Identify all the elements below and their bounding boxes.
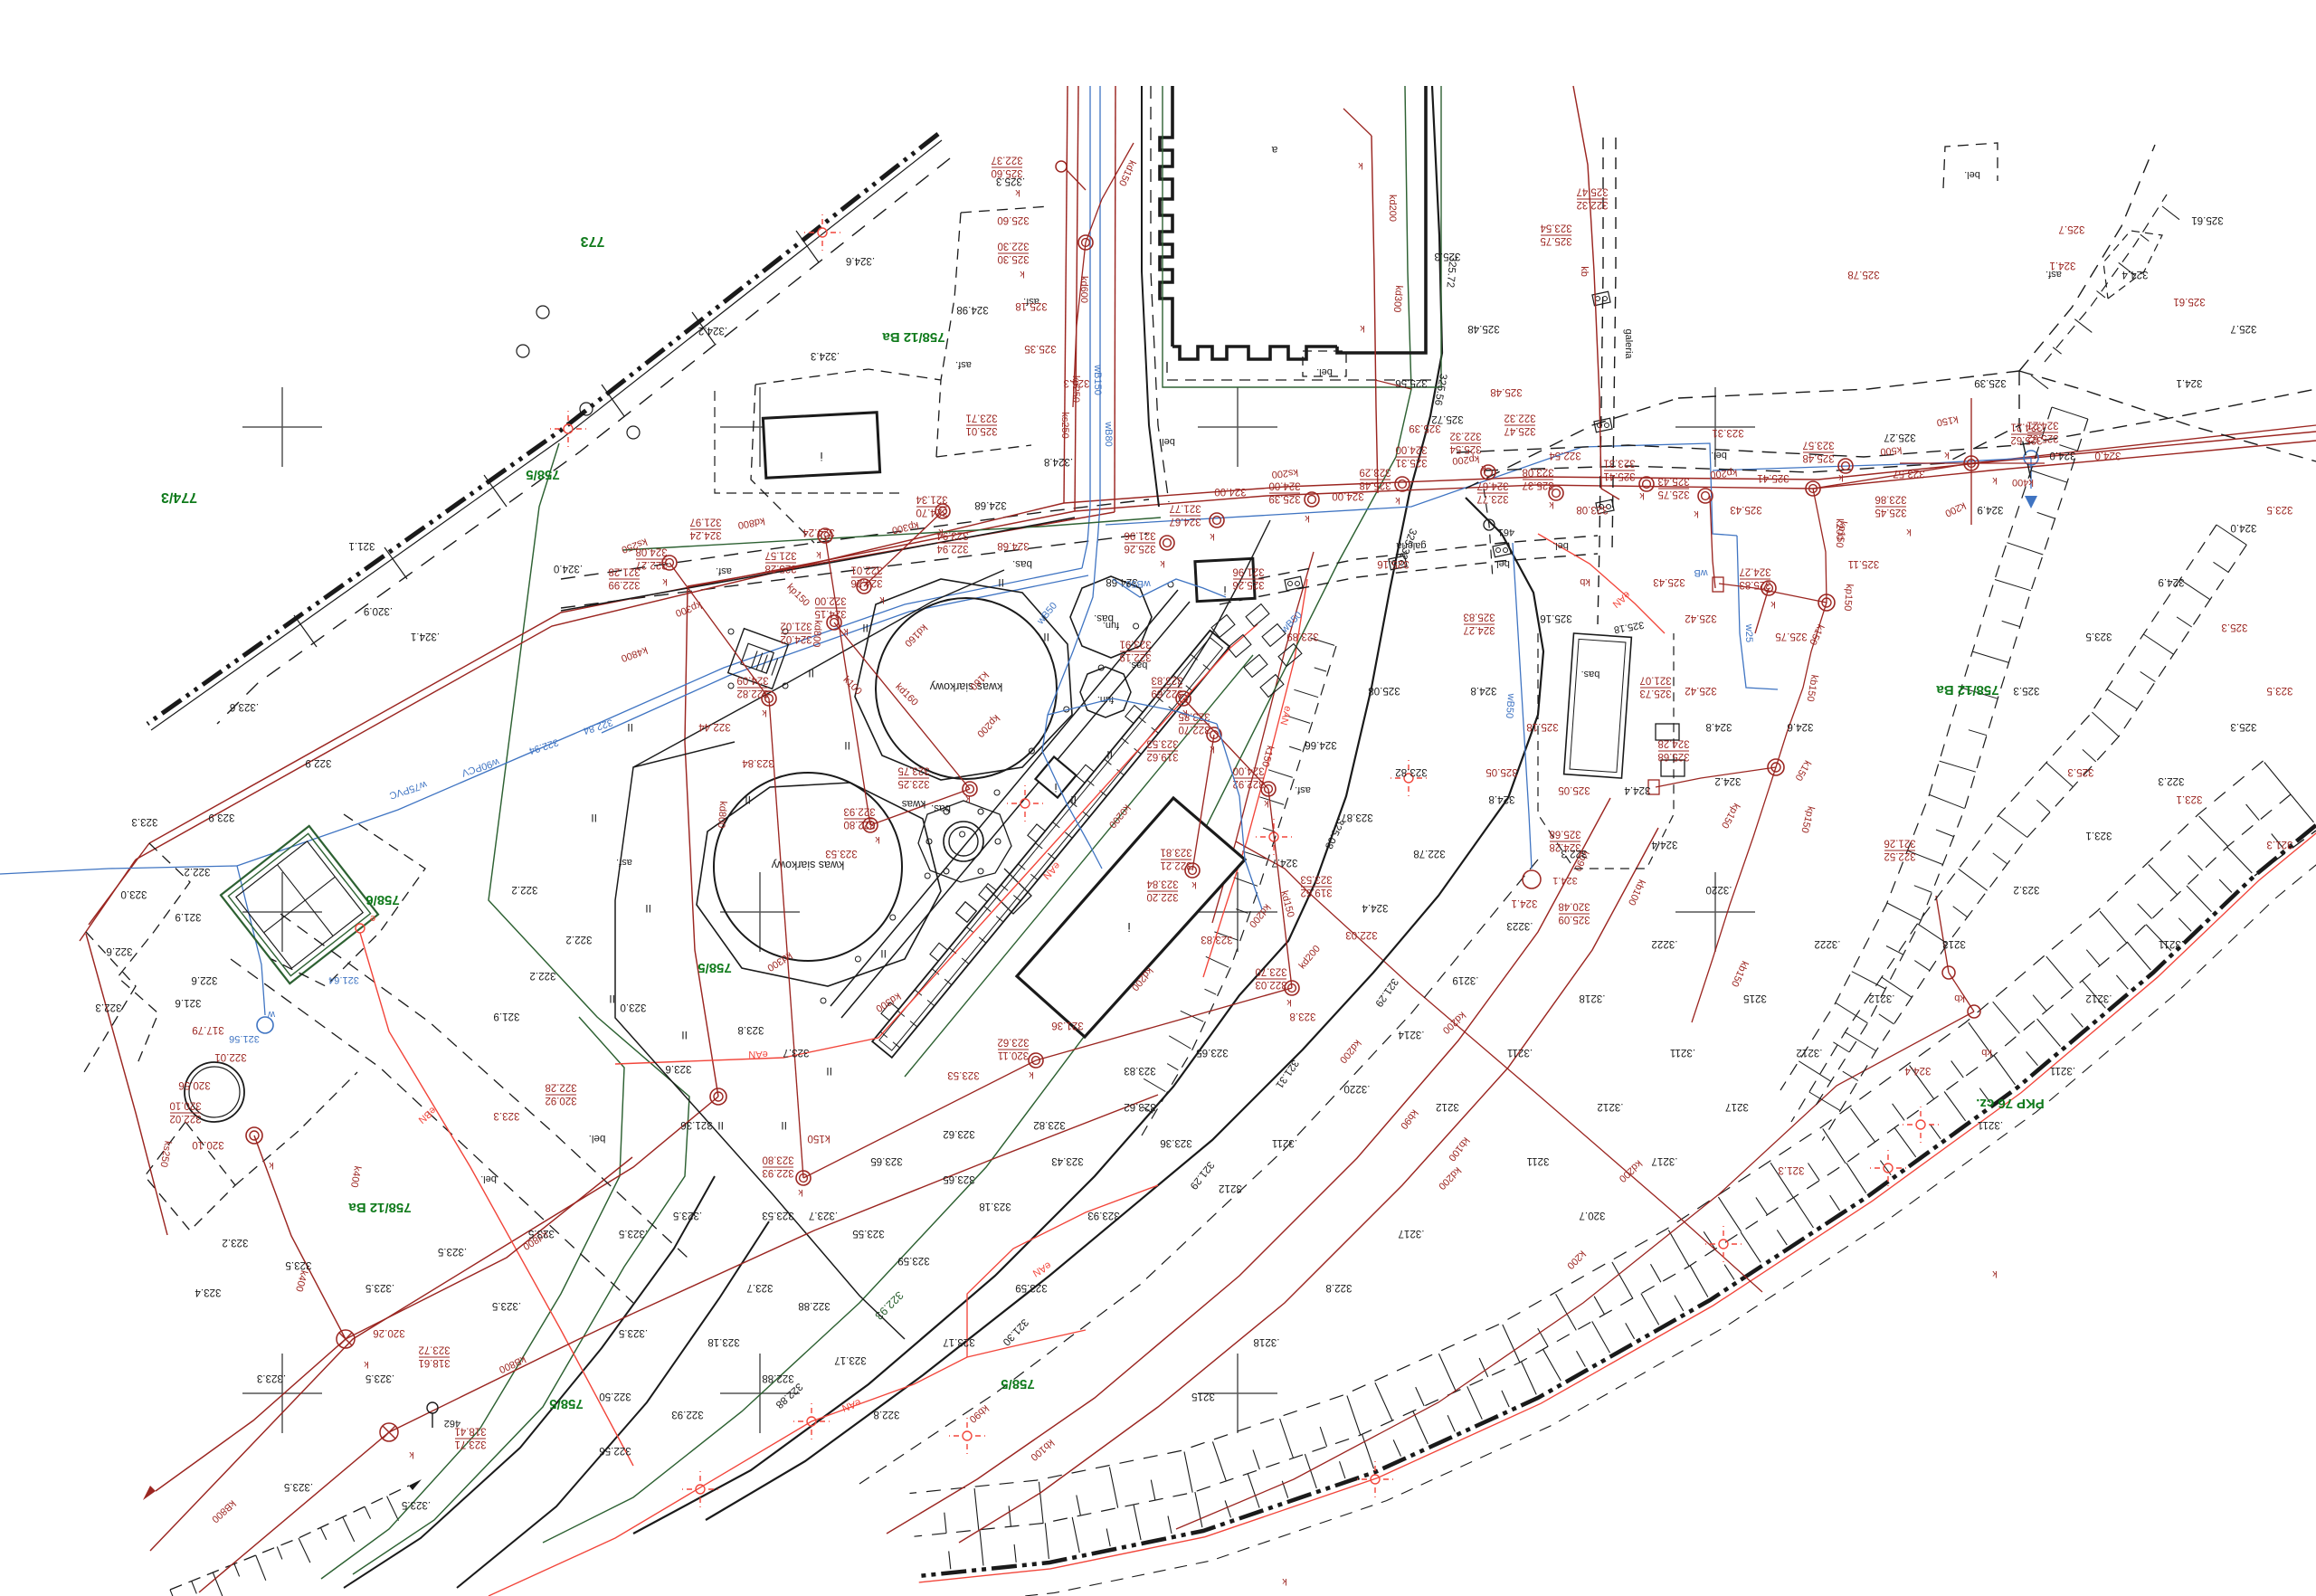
svg-text:758/5: 758/5 xyxy=(549,1396,584,1411)
svg-text:323.6: 323.6 xyxy=(665,1063,691,1075)
svg-text:323.7: 323.7 xyxy=(783,1047,809,1059)
svg-text:k: k xyxy=(1160,558,1165,569)
svg-text:.3214: .3214 xyxy=(1398,1029,1425,1040)
svg-text:320.7: 320.7 xyxy=(1579,1210,1605,1221)
svg-text:324.27: 324.27 xyxy=(1463,624,1495,635)
svg-text:324.0: 324.0 xyxy=(2094,450,2121,461)
svg-text:323.7: 323.7 xyxy=(746,1282,773,1294)
svg-text:325.43: 325.43 xyxy=(1657,476,1689,487)
svg-text:758/12 Ba: 758/12 Ba xyxy=(348,1200,412,1215)
svg-text:.3211: .3211 xyxy=(2050,1065,2075,1077)
svg-text:PKP 76 cz.: PKP 76 cz. xyxy=(1976,1096,2045,1111)
svg-text:325.27: 325.27 xyxy=(1884,432,1915,443)
svg-text:bel.: bel. xyxy=(1316,366,1333,377)
svg-text:asf.: asf. xyxy=(716,565,732,576)
svg-text:322.01: 322.01 xyxy=(214,1051,246,1063)
svg-text:.323.5: .323.5 xyxy=(673,1210,702,1221)
svg-text:i: i xyxy=(820,450,822,463)
svg-text:325.60: 325.60 xyxy=(997,214,1029,226)
svg-text:323.1: 323.1 xyxy=(2176,793,2202,805)
svg-text:323.5: 323.5 xyxy=(285,1259,311,1271)
svg-text:.325.3: .325.3 xyxy=(996,176,1025,187)
svg-text:k: k xyxy=(1992,475,1998,486)
svg-text:325.01: 325.01 xyxy=(965,425,997,436)
svg-text:323.18: 323.18 xyxy=(707,1336,739,1348)
svg-text:.3219: .3219 xyxy=(1452,974,1478,986)
svg-text:324.8: 324.8 xyxy=(1470,685,1496,697)
svg-text:.3220: .3220 xyxy=(1705,884,1732,896)
svg-text:774/3: 774/3 xyxy=(161,489,197,505)
svg-text:322.8: 322.8 xyxy=(1325,1282,1352,1294)
svg-text:w25: w25 xyxy=(1743,623,1754,642)
svg-text:322.78: 322.78 xyxy=(1413,848,1445,860)
svg-text:k: k xyxy=(1639,490,1645,501)
svg-text:k: k xyxy=(269,1160,274,1171)
svg-text:320.10: 320.10 xyxy=(192,1139,223,1151)
svg-text:i: i xyxy=(1223,584,1226,597)
svg-text:322.32: 322.32 xyxy=(1449,431,1481,442)
svg-text:.323.5: .323.5 xyxy=(438,1246,467,1258)
svg-text:325.16: 325.16 xyxy=(1540,613,1571,624)
svg-text:323.59: 323.59 xyxy=(1015,1282,1047,1294)
svg-text:321.26: 321.26 xyxy=(1884,838,1915,849)
svg-text:322.50: 322.50 xyxy=(599,1391,631,1402)
svg-text:II: II xyxy=(826,1065,832,1078)
svg-text:kb: kb xyxy=(1954,993,1965,1003)
svg-text:324.4: 324.4 xyxy=(1651,839,1678,850)
svg-text:321.97: 321.97 xyxy=(689,517,721,527)
svg-text:.323.5: .323.5 xyxy=(619,1228,648,1240)
svg-text:323.55: 323.55 xyxy=(852,1228,884,1240)
svg-text:3211: 3211 xyxy=(1527,1155,1550,1167)
svg-text:324.68: 324.68 xyxy=(997,540,1029,552)
svg-text:bas.: bas. xyxy=(1012,558,1032,570)
svg-text:325.41: 325.41 xyxy=(1757,472,1789,484)
svg-text:323.43: 323.43 xyxy=(1051,1155,1083,1167)
svg-text:kd600: kd600 xyxy=(1078,276,1089,303)
svg-text:324.24: 324.24 xyxy=(689,529,722,540)
svg-text:k150: k150 xyxy=(807,1133,830,1145)
svg-text:322.94: 322.94 xyxy=(936,543,969,554)
svg-text:wB50: wB50 xyxy=(1125,578,1152,589)
svg-text:325.45: 325.45 xyxy=(1875,507,1906,518)
svg-text:324.1: 324.1 xyxy=(1511,898,1537,909)
svg-text:323.62: 323.62 xyxy=(997,1037,1029,1048)
svg-text:k: k xyxy=(879,594,885,605)
svg-text:325.56: 325.56 xyxy=(1395,377,1427,389)
svg-text:.323.5: .323.5 xyxy=(365,1373,394,1384)
svg-text:321.07: 321.07 xyxy=(1639,675,1671,686)
svg-text:322.3: 322.3 xyxy=(1561,848,1587,860)
svg-text:322.6: 322.6 xyxy=(191,974,217,986)
svg-text:323.8: 323.8 xyxy=(737,1024,764,1036)
svg-text:322.88: 322.88 xyxy=(762,1373,793,1384)
svg-text:.323.5: .323.5 xyxy=(402,1499,431,1511)
svg-text:wB: wB xyxy=(1694,567,1708,578)
svg-text:325.48: 325.48 xyxy=(1490,386,1522,398)
svg-text:323.17: 323.17 xyxy=(834,1354,866,1366)
svg-text:319.62: 319.62 xyxy=(1300,887,1332,898)
svg-text:322.03: 322.03 xyxy=(1345,929,1377,941)
svg-text:k: k xyxy=(409,1449,414,1460)
svg-text:325.61: 325.61 xyxy=(2191,214,2223,226)
svg-text:325.31: 325.31 xyxy=(1395,457,1427,468)
svg-text:461: 461 xyxy=(1498,527,1514,537)
svg-text:325.16: 325.16 xyxy=(1377,558,1409,570)
svg-text:322.8: 322.8 xyxy=(873,1409,899,1420)
svg-text:.3211: .3211 xyxy=(1272,1137,1297,1149)
svg-text:320.10: 320.10 xyxy=(169,1100,201,1111)
svg-text:3215: 3215 xyxy=(1743,993,1767,1004)
svg-text:758/6: 758/6 xyxy=(365,892,400,907)
svg-text:323.83: 323.83 xyxy=(1124,1065,1155,1077)
svg-text:325.42: 325.42 xyxy=(1685,613,1716,624)
svg-text:324.6: 324.6 xyxy=(1787,721,1813,733)
svg-text:323.71: 323.71 xyxy=(965,413,997,423)
svg-text:324.4: 324.4 xyxy=(2121,269,2149,280)
svg-text:II: II xyxy=(645,902,651,915)
svg-text:324.1: 324.1 xyxy=(1552,875,1578,886)
svg-text:II: II xyxy=(1070,793,1077,806)
svg-text:.3223: .3223 xyxy=(1506,920,1533,932)
svg-text:322.2: 322.2 xyxy=(529,970,555,982)
svg-text:325.09: 325.09 xyxy=(1558,914,1590,925)
svg-text:322.93: 322.93 xyxy=(762,1167,793,1178)
svg-text:322.2: 322.2 xyxy=(511,884,537,896)
svg-text:.3222: .3222 xyxy=(1651,938,1677,950)
svg-text:325.26: 325.26 xyxy=(1232,579,1264,590)
svg-text:323.82: 323.82 xyxy=(1033,1119,1065,1131)
svg-text:323.83: 323.83 xyxy=(1151,675,1182,686)
svg-text:asf.: asf. xyxy=(1295,784,1311,795)
svg-text:asf.: asf. xyxy=(616,857,632,868)
svg-text:3212: 3212 xyxy=(1436,1101,1459,1113)
svg-text:321.1: 321.1 xyxy=(348,540,375,552)
svg-text:325.68: 325.68 xyxy=(1549,829,1580,840)
svg-text:325.18: 325.18 xyxy=(1015,300,1047,312)
svg-text:323.25: 323.25 xyxy=(897,778,929,789)
svg-text:wB80: wB80 xyxy=(1103,421,1114,447)
svg-text:wB150: wB150 xyxy=(1092,364,1103,395)
svg-text:323.0: 323.0 xyxy=(120,888,147,900)
svg-text:.324.1: .324.1 xyxy=(411,631,440,642)
svg-text:323.57: 323.57 xyxy=(1893,468,1924,480)
svg-text:325.75: 325.75 xyxy=(1775,631,1807,642)
svg-text:.3212: .3212 xyxy=(1868,993,1894,1004)
svg-text:.323.5: .323.5 xyxy=(492,1300,521,1312)
svg-text:.3217: .3217 xyxy=(1651,1155,1677,1167)
svg-text:321.56: 321.56 xyxy=(229,1033,260,1044)
svg-text:kb: kb xyxy=(1580,576,1590,587)
svg-text:k200: k200 xyxy=(1834,518,1845,540)
svg-text:.324.8: .324.8 xyxy=(1044,456,1073,468)
svg-text:.323.7: .323.7 xyxy=(809,1210,838,1221)
svg-text:.323.5: .323.5 xyxy=(619,1327,648,1339)
svg-text:325.26: 325.26 xyxy=(1124,543,1155,554)
svg-text:324.0: 324.0 xyxy=(2230,522,2256,534)
svg-text:k: k xyxy=(1360,323,1365,334)
svg-text:323.89: 323.89 xyxy=(1286,631,1318,642)
svg-text:II: II xyxy=(808,667,814,679)
svg-text:324.9: 324.9 xyxy=(1977,504,2003,516)
svg-text:.3211: .3211 xyxy=(1670,1047,1695,1059)
svg-text:324.7: 324.7 xyxy=(1271,857,1297,869)
svg-text:.3211: .3211 xyxy=(1507,1047,1533,1059)
svg-text:324.00: 324.00 xyxy=(1332,490,1363,502)
svg-text:323.31: 323.31 xyxy=(1603,458,1635,469)
svg-text:325.43: 325.43 xyxy=(1730,504,1761,516)
svg-text:323.2: 323.2 xyxy=(2013,884,2039,896)
svg-text:k: k xyxy=(1191,879,1197,890)
svg-text:325.37: 325.37 xyxy=(1522,480,1553,490)
svg-text:325.05: 325.05 xyxy=(1558,784,1590,796)
svg-text:323.08: 323.08 xyxy=(1522,467,1553,478)
svg-text:k: k xyxy=(843,626,849,637)
svg-text:.3218: .3218 xyxy=(1253,1336,1279,1348)
svg-text:k: k xyxy=(798,1187,803,1198)
svg-text:325.3: 325.3 xyxy=(2221,622,2247,633)
svg-text:323.53: 323.53 xyxy=(1300,874,1332,885)
svg-text:323.9: 323.9 xyxy=(208,812,234,823)
svg-text:w: w xyxy=(268,1009,276,1020)
svg-text:322.30: 322.30 xyxy=(997,241,1029,252)
svg-text:321.28: 321.28 xyxy=(608,566,640,577)
svg-text:.3220: .3220 xyxy=(1343,1083,1370,1095)
svg-text:II: II xyxy=(591,812,597,824)
svg-text:3212: 3212 xyxy=(1219,1183,1242,1194)
svg-text:323.0: 323.0 xyxy=(620,1002,646,1013)
svg-text:324.67: 324.67 xyxy=(1169,516,1201,527)
svg-text:323.81: 323.81 xyxy=(1160,847,1191,858)
svg-text:318.61: 318.61 xyxy=(418,1357,450,1368)
svg-text:325.35: 325.35 xyxy=(1024,343,1056,355)
svg-text:322.3: 322.3 xyxy=(95,1002,121,1013)
svg-text:bas.: bas. xyxy=(1581,669,1600,679)
svg-text:758/5: 758/5 xyxy=(698,960,732,975)
svg-text:322.32: 322.32 xyxy=(1504,413,1535,423)
svg-text:325.48: 325.48 xyxy=(1802,452,1834,463)
svg-text:.3222: .3222 xyxy=(1814,938,1840,950)
svg-text:.324.2: .324.2 xyxy=(698,325,727,337)
svg-text:k: k xyxy=(1282,1576,1287,1587)
svg-text:322.28: 322.28 xyxy=(545,1082,576,1093)
svg-text:319.62: 319.62 xyxy=(1146,751,1178,762)
svg-text:324.1: 324.1 xyxy=(2049,260,2075,271)
svg-text:321.6: 321.6 xyxy=(175,997,201,1009)
svg-text:k: k xyxy=(1906,527,1912,537)
svg-text:322.37: 322.37 xyxy=(991,155,1022,166)
svg-text:galeria: galeria xyxy=(1623,328,1634,359)
svg-text:325.48: 325.48 xyxy=(1467,323,1499,335)
svg-text:324.4: 324.4 xyxy=(1624,784,1651,796)
svg-text:323.84: 323.84 xyxy=(1146,879,1179,889)
svg-text:323.65: 323.65 xyxy=(870,1155,902,1167)
svg-text:325.39: 325.39 xyxy=(1268,493,1300,504)
svg-text:.3212: .3212 xyxy=(1796,1047,1822,1059)
svg-text:k: k xyxy=(1305,513,1310,524)
svg-text:e: e xyxy=(370,913,375,924)
svg-text:321.57: 321.57 xyxy=(764,550,796,561)
svg-text:758/5: 758/5 xyxy=(1001,1376,1035,1392)
svg-text:325.28: 325.28 xyxy=(764,563,796,574)
svg-text:.323.3: .323.3 xyxy=(257,1373,286,1384)
svg-text:323.80: 323.80 xyxy=(762,1154,793,1165)
svg-text:323.59: 323.59 xyxy=(897,1255,929,1267)
svg-text:324.00: 324.00 xyxy=(1232,765,1264,776)
svg-text:323.31: 323.31 xyxy=(1712,427,1743,439)
svg-text:324.21: 324.21 xyxy=(2010,422,2042,432)
svg-text:3215: 3215 xyxy=(1191,1391,1215,1402)
svg-text:.3212: .3212 xyxy=(2085,993,2112,1004)
svg-text:323.53: 323.53 xyxy=(825,848,857,860)
svg-text:322.20: 322.20 xyxy=(1146,891,1178,902)
svg-text:bel.: bel. xyxy=(1552,540,1569,551)
svg-text:3217: 3217 xyxy=(1725,1101,1749,1113)
svg-text:bel.: bel. xyxy=(589,1133,606,1145)
svg-text:320.26: 320.26 xyxy=(373,1327,404,1339)
svg-text:325.41: 325.41 xyxy=(1603,470,1635,481)
svg-text:323.83: 323.83 xyxy=(1201,934,1232,945)
svg-text:323.4: 323.4 xyxy=(195,1287,222,1298)
svg-text:323.53: 323.53 xyxy=(762,1210,793,1221)
svg-text:325.62: 325.62 xyxy=(2010,434,2042,445)
svg-text:324.27: 324.27 xyxy=(1739,566,1770,577)
svg-text:320.56: 320.56 xyxy=(178,1079,210,1091)
svg-text:a: a xyxy=(1271,144,1277,157)
svg-text:323.93: 323.93 xyxy=(1087,1210,1119,1221)
svg-text:II: II xyxy=(609,993,615,1005)
svg-text:eAN: eAN xyxy=(748,1049,767,1059)
svg-text:323.77: 323.77 xyxy=(1476,493,1508,504)
svg-text:k: k xyxy=(1358,160,1363,171)
svg-text:323.72: 323.72 xyxy=(418,1344,450,1355)
svg-text:325.75: 325.75 xyxy=(1540,235,1571,246)
svg-text:bel.: bel. xyxy=(1711,450,1727,461)
svg-text:322.6: 322.6 xyxy=(106,945,132,957)
svg-text:322.88: 322.88 xyxy=(798,1300,830,1312)
svg-text:324.2: 324.2 xyxy=(1714,775,1741,787)
svg-text:773: 773 xyxy=(581,233,605,249)
svg-text:323.53: 323.53 xyxy=(1146,738,1178,749)
svg-text:325.3: 325.3 xyxy=(2067,766,2093,778)
svg-text:323.57: 323.57 xyxy=(1802,440,1834,451)
svg-text:k: k xyxy=(662,576,668,587)
svg-text:323.54: 323.54 xyxy=(1540,223,1572,233)
svg-text:k: k xyxy=(1264,798,1269,809)
svg-text:k: k xyxy=(762,708,767,718)
svg-text:322.56: 322.56 xyxy=(599,1445,631,1457)
svg-text:322.93: 322.93 xyxy=(843,806,875,817)
svg-text:321.36: 321.36 xyxy=(1051,1020,1083,1031)
svg-text:II: II xyxy=(781,1119,787,1132)
svg-text:.320.9: .320.9 xyxy=(364,605,393,617)
svg-text:II: II xyxy=(717,1119,724,1132)
svg-text:323.65: 323.65 xyxy=(943,1173,974,1185)
svg-text:.324.6: .324.6 xyxy=(846,255,875,267)
svg-text:.323.6: .323.6 xyxy=(230,701,259,713)
svg-text:322.19: 322.19 xyxy=(1119,651,1151,662)
svg-text:322.9: 322.9 xyxy=(305,757,331,769)
svg-text:bas.: bas. xyxy=(1094,613,1114,624)
svg-text:324.02: 324.02 xyxy=(780,633,812,644)
svg-text:k: k xyxy=(1944,450,1950,461)
svg-text:322.44: 322.44 xyxy=(698,721,731,733)
svg-text:323.5: 323.5 xyxy=(2266,504,2292,516)
svg-text:323.5: 323.5 xyxy=(2266,685,2292,697)
svg-text:324.67: 324.67 xyxy=(1476,480,1508,491)
svg-text:II: II xyxy=(1043,631,1049,643)
svg-text:bel.: bel. xyxy=(1159,436,1175,447)
svg-text:325.42: 325.42 xyxy=(1685,685,1716,697)
svg-text:.3211: .3211 xyxy=(1978,1119,2003,1131)
svg-text:ks200: ks200 xyxy=(1271,467,1298,480)
svg-text:320.92: 320.92 xyxy=(545,1095,576,1106)
svg-text:bel.: bel. xyxy=(1494,558,1510,569)
svg-text:322.70: 322.70 xyxy=(1178,724,1210,735)
svg-text:k: k xyxy=(1029,1069,1034,1080)
svg-text:323.08: 323.08 xyxy=(1576,504,1608,516)
svg-text:.324.3: .324.3 xyxy=(811,350,840,362)
svg-text:325.18: 325.18 xyxy=(1526,721,1558,733)
svg-text:325.3: 325.3 xyxy=(2230,721,2256,733)
svg-text:325.08: 325.08 xyxy=(1368,685,1400,697)
svg-text:321.77: 321.77 xyxy=(1169,503,1201,514)
svg-text:325.05: 325.05 xyxy=(1485,766,1517,778)
svg-text:321.96: 321.96 xyxy=(1232,566,1264,577)
svg-text:324.00: 324.00 xyxy=(1395,444,1427,455)
svg-text:322.32: 322.32 xyxy=(1576,199,1608,210)
svg-text:324.66: 324.66 xyxy=(1305,739,1336,751)
svg-text:324.8: 324.8 xyxy=(1705,721,1732,733)
svg-text:II: II xyxy=(844,739,850,752)
svg-text:.323.5: .323.5 xyxy=(284,1481,313,1493)
svg-text:325.30: 325.30 xyxy=(997,253,1029,264)
svg-text:bel.: bel. xyxy=(1964,169,1980,180)
svg-text:II: II xyxy=(627,721,633,734)
svg-text:324.28: 324.28 xyxy=(1657,738,1689,749)
svg-text:758/12 Ba: 758/12 Ba xyxy=(1936,682,1999,698)
svg-text:wB50: wB50 xyxy=(1504,692,1516,718)
svg-text:323.86: 323.86 xyxy=(1875,494,1906,505)
svg-text:k500: k500 xyxy=(1880,444,1903,457)
svg-text:758/5: 758/5 xyxy=(526,467,560,482)
svg-text:325.47: 325.47 xyxy=(1576,186,1608,197)
svg-text:322.3: 322.3 xyxy=(2158,775,2184,787)
svg-text:324.4: 324.4 xyxy=(1904,1065,1932,1077)
svg-text:II: II xyxy=(862,622,868,634)
svg-text:320.11: 320.11 xyxy=(998,1050,1029,1060)
svg-text:322.03: 322.03 xyxy=(1255,979,1286,990)
svg-text:3213: 3213 xyxy=(1942,938,1966,950)
svg-text:II: II xyxy=(745,793,751,806)
svg-text:323.2: 323.2 xyxy=(222,1237,248,1249)
svg-text:321.96: 321.96 xyxy=(1124,530,1155,541)
svg-text:325.61: 325.61 xyxy=(2173,296,2205,308)
svg-text:322.2: 322.2 xyxy=(184,866,210,878)
svg-text:k: k xyxy=(1549,499,1554,510)
svg-text:i: i xyxy=(1127,920,1130,935)
svg-text:325.73: 325.73 xyxy=(1639,688,1671,698)
svg-text:323.5: 323.5 xyxy=(2085,631,2112,642)
svg-text:321.34: 321.34 xyxy=(916,494,948,505)
svg-text:k: k xyxy=(1015,187,1020,198)
svg-text:k: k xyxy=(1838,472,1844,483)
svg-text:322.00: 322.00 xyxy=(814,595,846,606)
svg-text:324.15: 324.15 xyxy=(814,608,846,619)
svg-text:323.29: 323.29 xyxy=(1359,467,1391,478)
svg-text:324.70: 324.70 xyxy=(916,507,947,518)
svg-text:k: k xyxy=(938,527,944,537)
